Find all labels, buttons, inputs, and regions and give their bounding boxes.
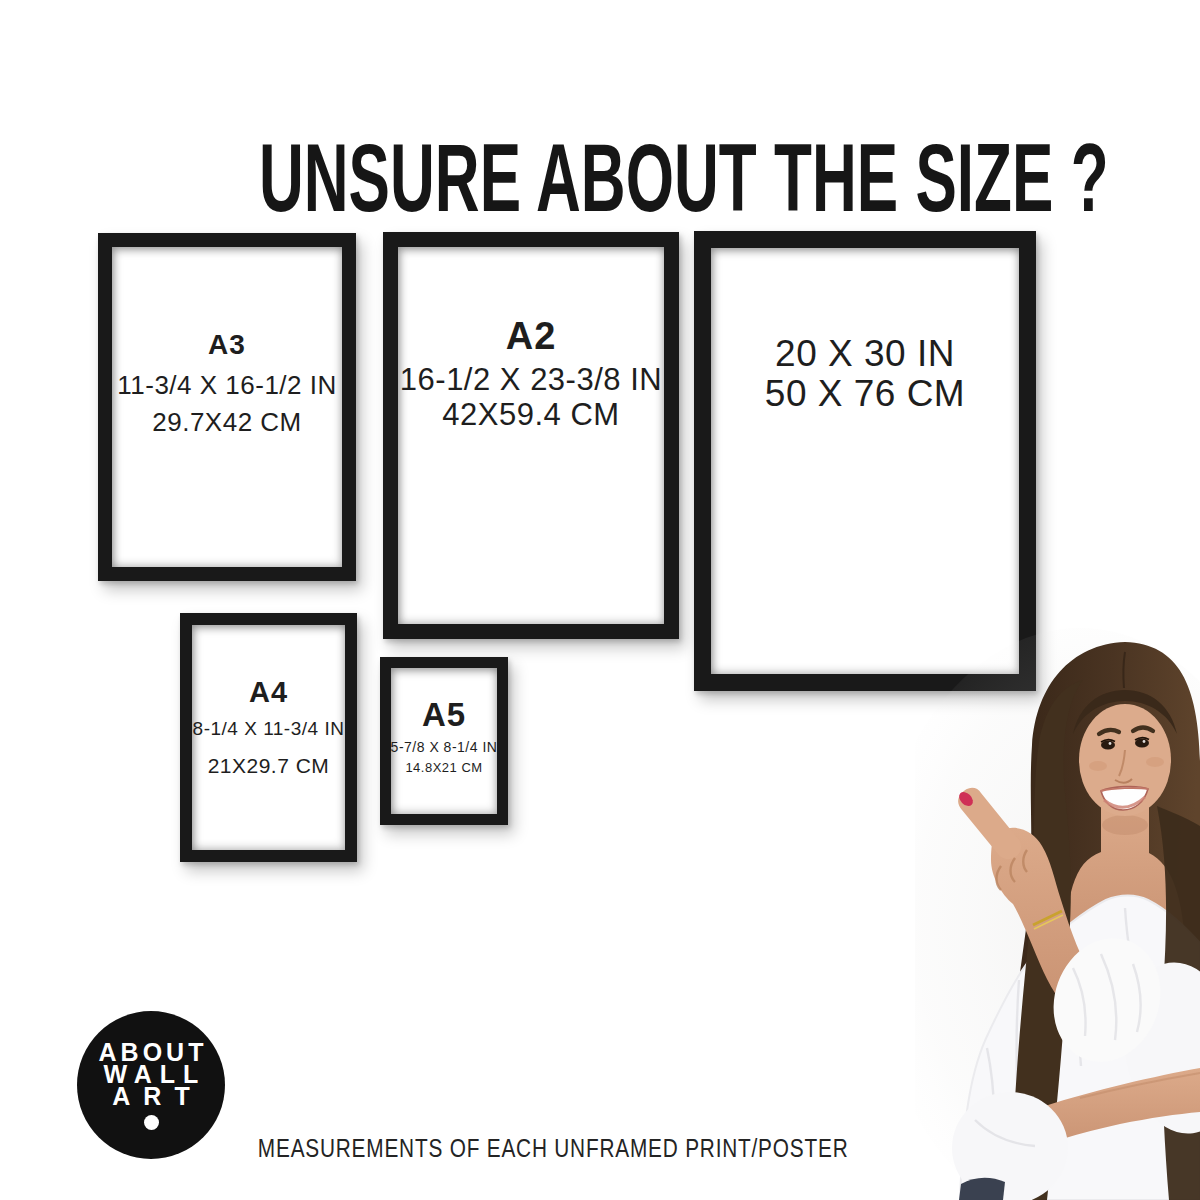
left-cheek [1089,761,1107,771]
frame-a3-inches: 11-3/4 X 16-1/2 IN [117,367,337,404]
frame-a5-cm: 14.8X21 CM [405,758,482,778]
frame-20x30-inches: 20 X 30 IN [775,334,955,374]
footer-caption: MEASUREMENTS OF EACH UNFRAMED PRINT/POST… [0,1133,1106,1164]
frame-a4: A4 8-1/4 X 11-3/4 IN 21X29.7 CM [180,613,357,862]
frame-a5-mat: A5 5-7/8 X 8-1/4 IN 14.8X21 CM [391,668,497,814]
logo-line-art: ART [99,1085,202,1107]
frame-a5-label: A5 [422,696,466,734]
page-title: UNSURE ABOUT THE SIZE ? [20,129,1200,226]
frame-a3-label: A3 [208,329,246,361]
frame-a4-mat: A4 8-1/4 X 11-3/4 IN 21X29.7 CM [192,625,345,850]
frame-a2-label: A2 [506,315,557,359]
frame-a4-cm: 21X29.7 CM [208,751,330,781]
frame-a4-label: A4 [249,676,288,709]
footer-caption-text: MEASUREMENTS OF EACH UNFRAMED PRINT/POST… [258,1133,849,1164]
frame-20x30: 20 X 30 IN 50 X 76 CM [694,231,1036,691]
size-guide-infographic: UNSURE ABOUT THE SIZE ? A3 11-3/4 X 16-1… [0,0,1200,1200]
frame-20x30-cm: 50 X 76 CM [765,374,965,414]
right-cheek [1146,757,1164,767]
frame-a4-inches: 8-1/4 X 11-3/4 IN [193,714,345,744]
frame-a3-mat: A3 11-3/4 X 16-1/2 IN 29.7X42 CM [112,247,342,567]
page-title-text: UNSURE ABOUT THE SIZE ? [259,129,1109,226]
frame-a2-mat: A2 16-1/2 X 23-3/8 IN 42X59.4 CM [398,247,664,624]
frame-a5-inches: 5-7/8 X 8-1/4 IN [391,736,498,758]
frame-a5: A5 5-7/8 X 8-1/4 IN 14.8X21 CM [380,657,508,825]
frame-a2: A2 16-1/2 X 23-3/8 IN 42X59.4 CM [383,232,679,639]
frame-a3: A3 11-3/4 X 16-1/2 IN 29.7X42 CM [98,233,356,581]
frame-a2-inches: 16-1/2 X 23-3/8 IN [400,362,662,397]
frame-a2-cm: 42X59.4 CM [442,397,619,432]
woman-model-photo [915,628,1200,1200]
frame-20x30-mat: 20 X 30 IN 50 X 76 CM [711,248,1019,674]
frame-a3-cm: 29.7X42 CM [152,404,302,441]
logo-dot [144,1115,159,1130]
